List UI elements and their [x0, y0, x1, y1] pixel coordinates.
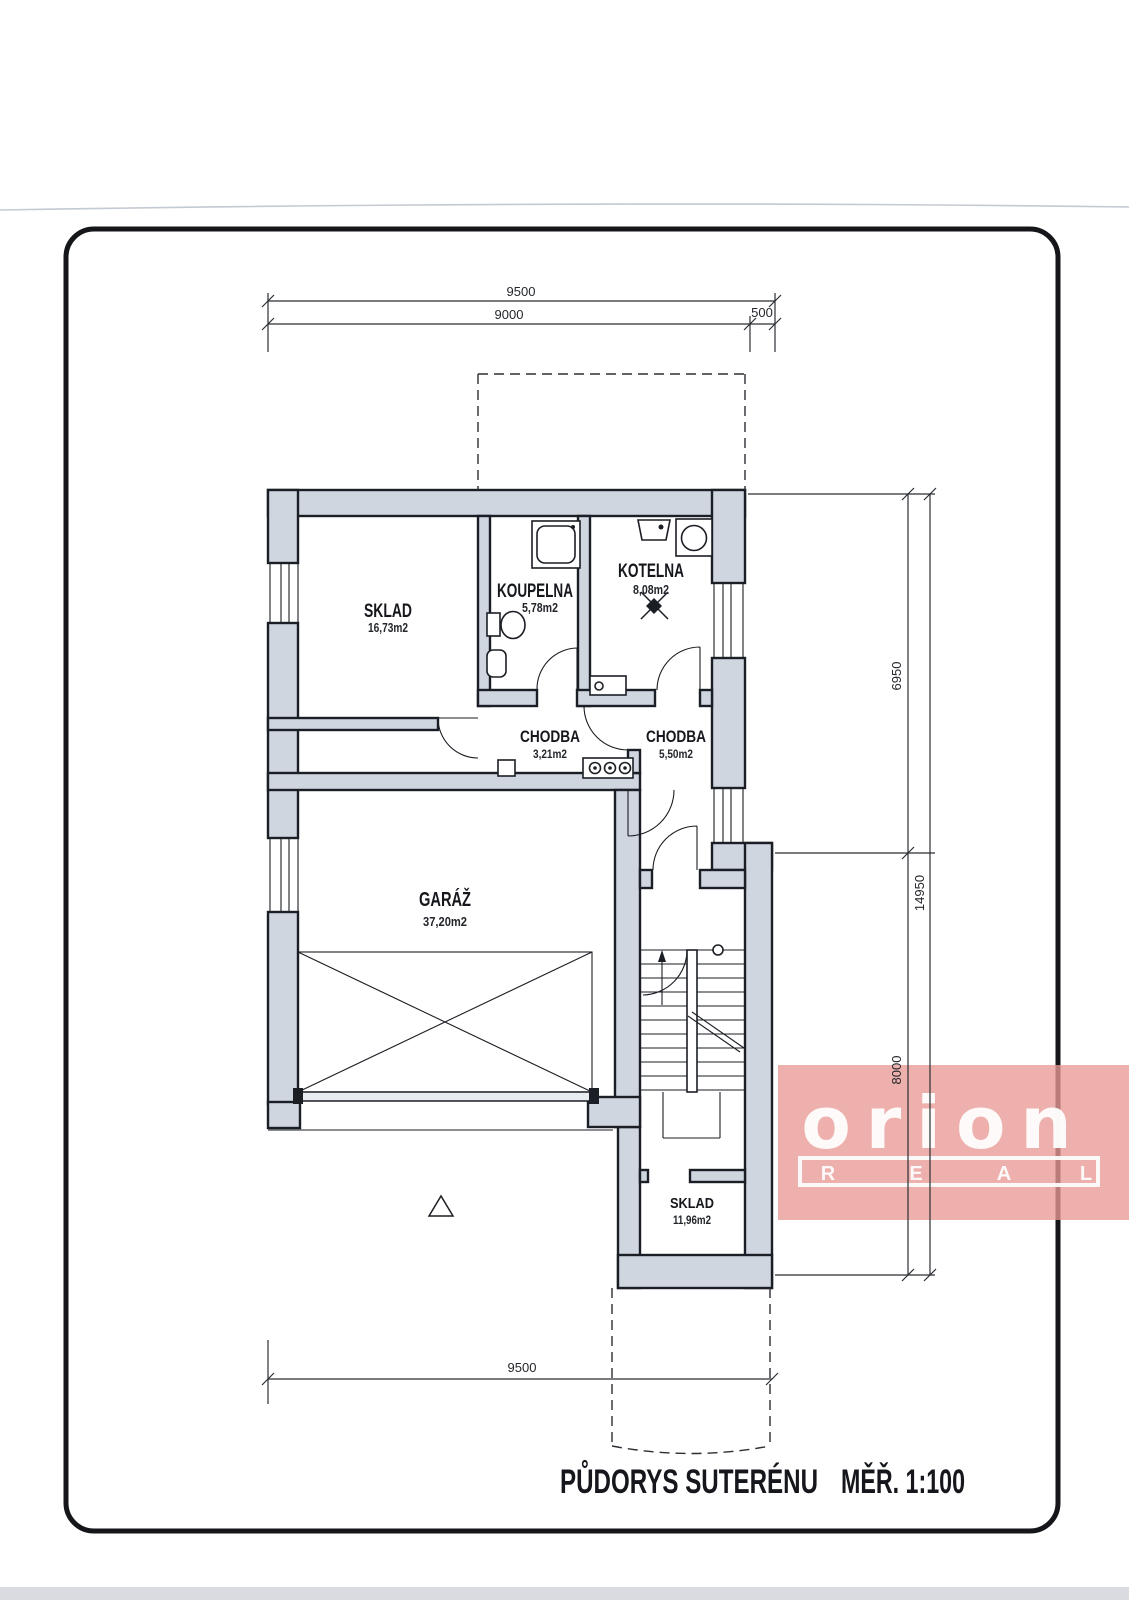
- wall-sklad2-top-b: [690, 1170, 745, 1182]
- wall-landing-top-b: [700, 870, 745, 888]
- garage-door-jamb-right: [589, 1088, 599, 1104]
- wall-stairwell-right: [745, 843, 772, 1288]
- top-extension-lines: [268, 293, 775, 352]
- label-sklad-lower: SKLAD: [670, 1196, 714, 1212]
- door-chodba-divider: [584, 706, 628, 750]
- page-border: [66, 229, 1058, 1531]
- toilet-bowl: [501, 612, 525, 639]
- corridor-box: [498, 760, 515, 776]
- watermark-letter-r: R: [821, 1163, 836, 1185]
- washbasin: [487, 650, 506, 677]
- wall-sklad-bottom: [268, 718, 438, 730]
- dim-top-total: 9500: [507, 284, 536, 299]
- floor-plan-drawing: SKLAD 16,73m2 KOUPELNA 5,78m2 KOTELNA 8,…: [0, 0, 1129, 1600]
- wall-kotelna-bottom-c: [700, 690, 712, 706]
- walls: [268, 490, 772, 1288]
- projection-below-bottom: [612, 1288, 770, 1454]
- label-chodba-small: CHODBA: [520, 727, 580, 746]
- dimensions-top: 9500 9000 500: [262, 284, 781, 352]
- dim-bottom-total: 9500: [508, 1360, 537, 1375]
- parking-space-cross: [298, 952, 592, 1092]
- meter-box: [583, 758, 633, 778]
- area-kotelna: 8,08m2: [633, 583, 669, 597]
- label-chodba-large: CHODBA: [646, 727, 706, 746]
- area-sklad-upper: 16,73m2: [368, 621, 408, 635]
- wall-garage-bottom-left: [268, 1102, 300, 1128]
- area-sklad-lower: 11,96m2: [673, 1215, 711, 1227]
- wall-top: [268, 490, 745, 516]
- scan-artifacts: [0, 204, 1129, 1600]
- room-labels: SKLAD 16,73m2 KOUPELNA 5,78m2 KOTELNA 8,…: [364, 561, 714, 1227]
- boiler-door-icon: [682, 526, 707, 551]
- label-kotelna: KOTELNA: [618, 561, 684, 582]
- door-koupelna: [537, 648, 577, 690]
- garage-door-jamb-left: [293, 1088, 303, 1104]
- wall-garage-right: [615, 790, 640, 1127]
- scanned-floor-plan-page: SKLAD 16,73m2 KOUPELNA 5,78m2 KOTELNA 8,…: [0, 0, 1129, 1600]
- staircase: [640, 945, 745, 1138]
- boiler-room-fixtures: [590, 519, 712, 695]
- wall-stairwell-bottom: [618, 1255, 772, 1288]
- door-kotelna: [657, 647, 700, 690]
- label-garaz: GARÁŽ: [419, 887, 471, 911]
- floor-plan: SKLAD 16,73m2 KOUPELNA 5,78m2 KOTELNA 8,…: [268, 490, 772, 1288]
- wall-right-seg1: [712, 490, 745, 583]
- title-block: PŮDORYS SUTERÉNU MĚŘ. 1:100: [560, 1460, 965, 1501]
- scan-edge-strip: [0, 1587, 1129, 1600]
- toilet-tank: [487, 613, 500, 636]
- projection-above-top: [478, 374, 745, 490]
- wall-koupelna-left: [478, 516, 490, 706]
- area-chodba-small: 3,21m2: [533, 747, 567, 761]
- drawing-title: PŮDORYS SUTERÉNU: [560, 1460, 818, 1501]
- window-sklad-left: [270, 563, 298, 623]
- shower-inner: [537, 526, 575, 563]
- window-vestibule-right: [714, 788, 743, 843]
- watermark-letter-e: E: [909, 1163, 922, 1185]
- door-stairs: [643, 950, 687, 995]
- window-kotelna-right: [714, 583, 743, 658]
- label-sklad-upper: SKLAD: [364, 601, 412, 622]
- stair-lower-flight-outline: [663, 1092, 720, 1138]
- kotelna-appliance-knob: [595, 682, 603, 690]
- wall-left-seg1: [268, 490, 298, 563]
- scan-fold-line: [0, 204, 1129, 210]
- wall-left-seg3: [268, 912, 298, 1104]
- area-chodba-large: 5,50m2: [659, 747, 693, 761]
- window-garage-left: [270, 838, 298, 912]
- door-landing: [653, 826, 697, 870]
- orion-logo: orion: [801, 1081, 1086, 1165]
- area-garaz: 37,20m2: [423, 914, 467, 929]
- garage-details: [268, 952, 613, 1216]
- watermark-letter-l: L: [1080, 1163, 1092, 1185]
- wall-sklad2-top-a: [640, 1170, 648, 1182]
- wall-right-seg2: [712, 658, 745, 788]
- dim-right-lower: 8000: [889, 1056, 904, 1085]
- shower-drain-icon: [571, 525, 575, 529]
- kotelna-sink-drain-icon: [659, 525, 664, 530]
- dim-right-total: 14950: [912, 875, 927, 911]
- door-sklad-upper: [438, 718, 478, 758]
- dimensions-bottom: 9500: [262, 1340, 778, 1404]
- kotelna-sink: [638, 520, 670, 540]
- stair-post-icon: [713, 945, 723, 955]
- watermark: orion R E A L: [778, 1065, 1129, 1220]
- dim-top-side: 500: [751, 305, 773, 320]
- label-koupelna: KOUPELNA: [497, 581, 573, 602]
- wall-koupelna-bottom-a: [478, 690, 537, 706]
- wall-landing-top-a: [640, 870, 652, 888]
- garage-door-panel: [297, 1092, 592, 1101]
- dim-top-main: 9000: [495, 307, 524, 322]
- dim-right-upper: 6950: [889, 662, 904, 691]
- entry-triangle-marker: [429, 1196, 453, 1216]
- drawing-scale: MĚŘ. 1:100: [841, 1463, 965, 1501]
- watermark-letter-a: A: [997, 1163, 1011, 1185]
- area-koupelna: 5,78m2: [522, 601, 558, 615]
